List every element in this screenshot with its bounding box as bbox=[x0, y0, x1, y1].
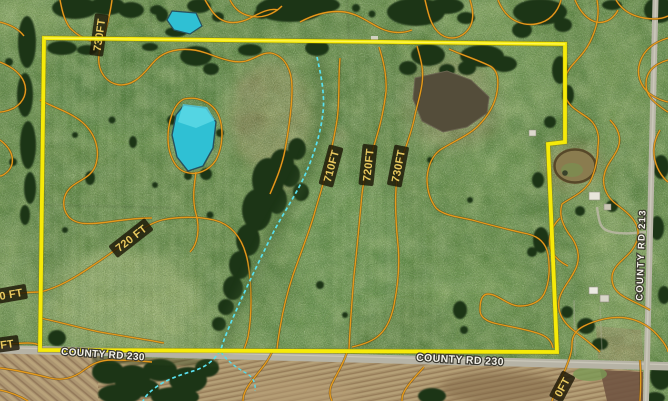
svg-text:FT: FT bbox=[0, 338, 15, 352]
